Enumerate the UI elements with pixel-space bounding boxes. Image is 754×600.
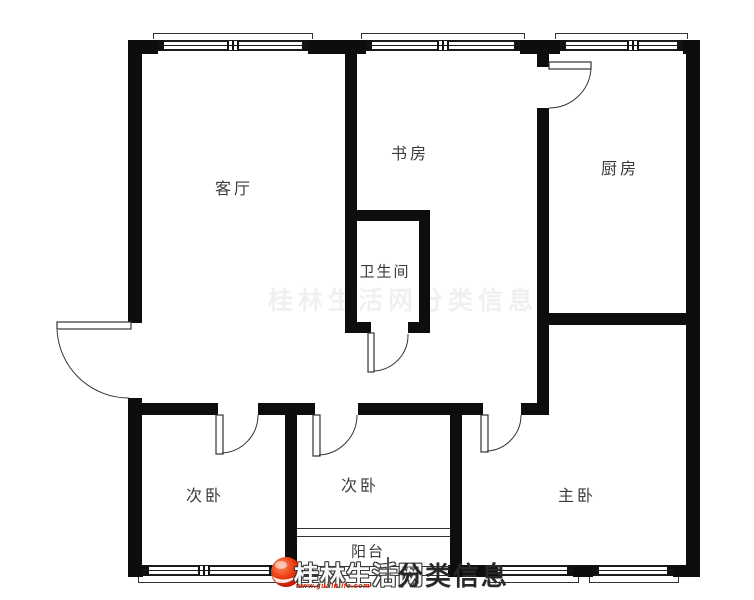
kitchen-door [549,62,591,108]
bedroom-middle-door [313,415,357,456]
watermark-separator [387,557,389,583]
watermark-url: www.guilinlife.com [296,583,370,590]
floorplan-image: 桂林生活网分类信息 [0,0,754,600]
room-label-study: 书房 [391,140,429,164]
door-symbols-layer [0,0,754,600]
room-label-bedroom-middle: 次卧 [341,472,379,496]
bathroom-door [368,333,408,372]
room-label-kitchen: 厨房 [601,155,639,179]
watermark-section-name: 分类信息 [397,556,509,593]
bedroom-left-door [216,415,258,454]
room-label-bedroom-left: 次卧 [186,482,224,506]
entrance-door [57,322,131,398]
room-label-bedroom-master: 主卧 [558,482,596,506]
bedroom-master-door [481,415,521,452]
room-label-bathroom: 卫生间 [359,261,410,282]
room-label-living: 客厅 [215,175,253,199]
